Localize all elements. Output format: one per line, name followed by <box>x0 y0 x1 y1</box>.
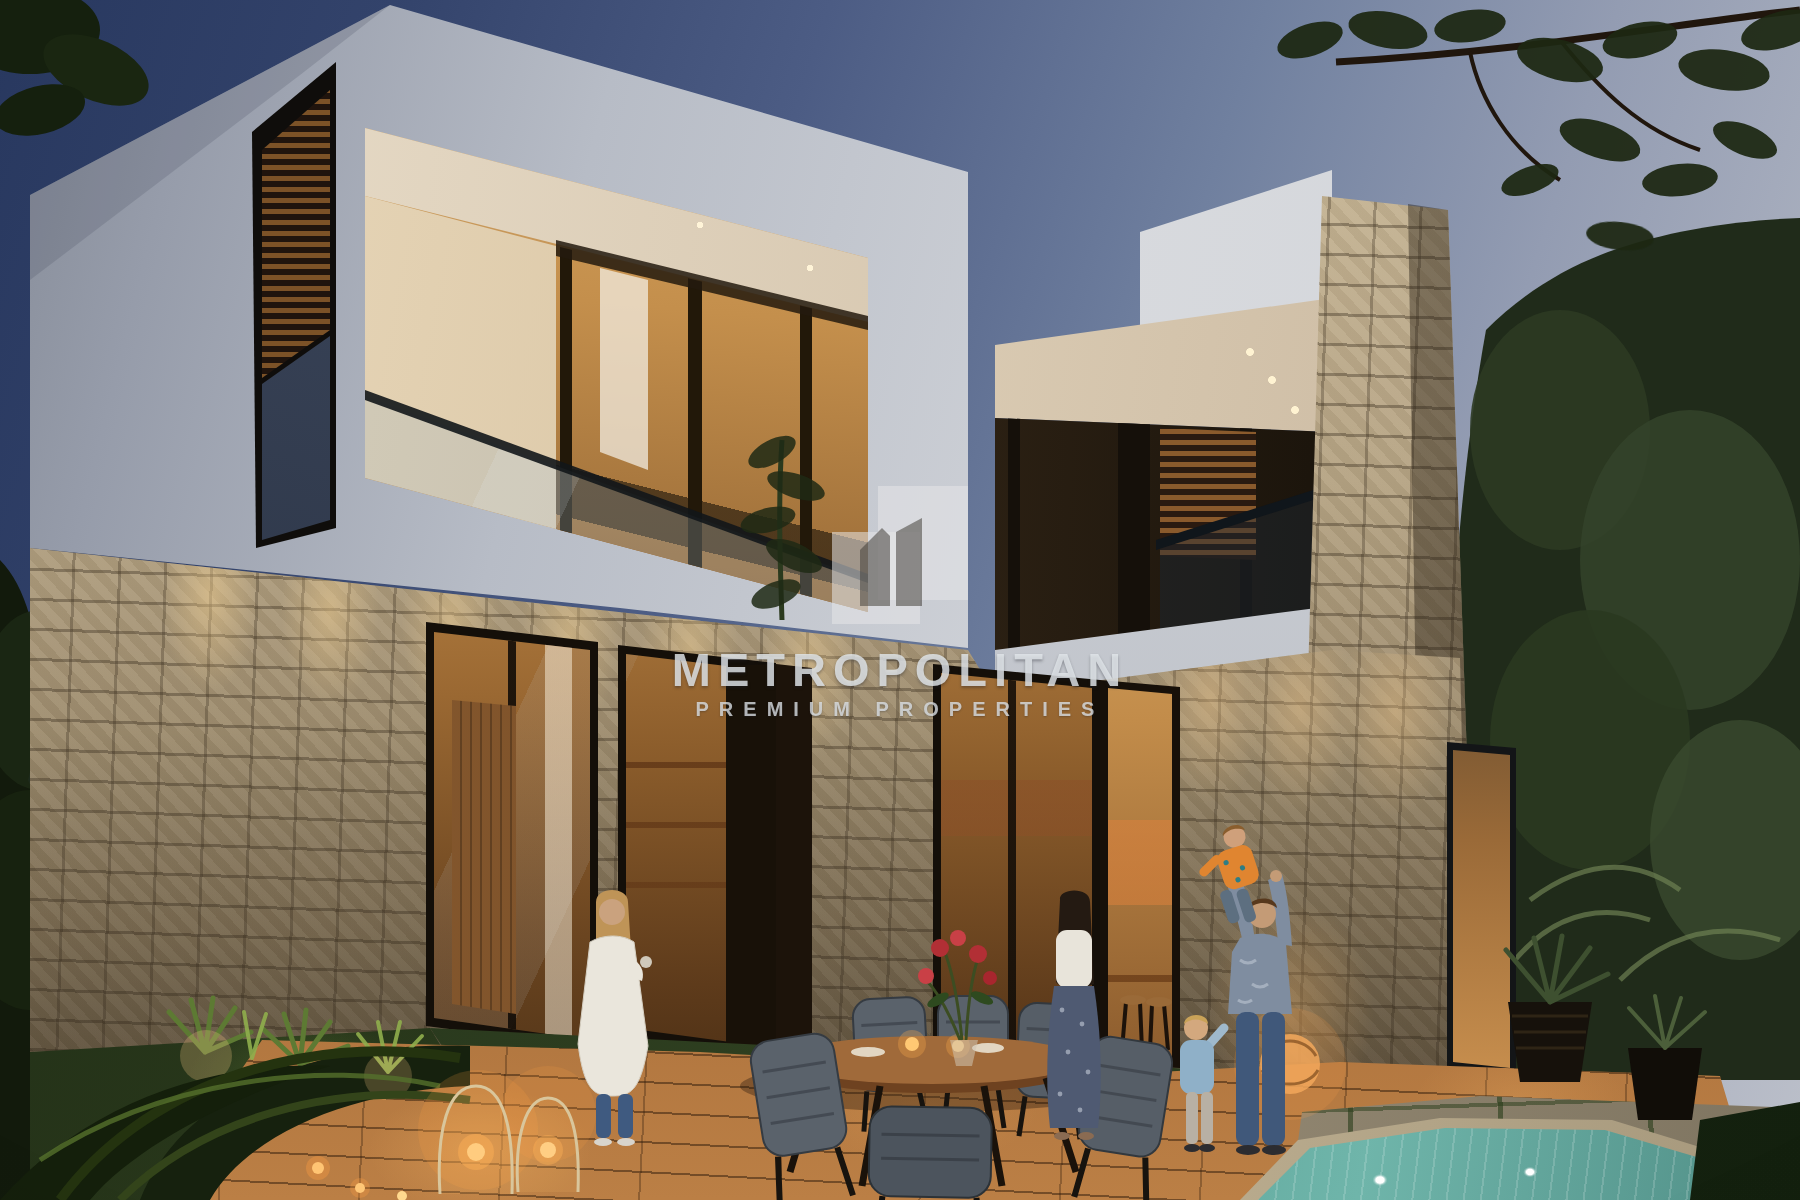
villa-dusk-render: METROPOLITAN PREMIUM PROPERTIES <box>0 0 1800 1200</box>
vignette-overlay <box>0 0 1800 1200</box>
